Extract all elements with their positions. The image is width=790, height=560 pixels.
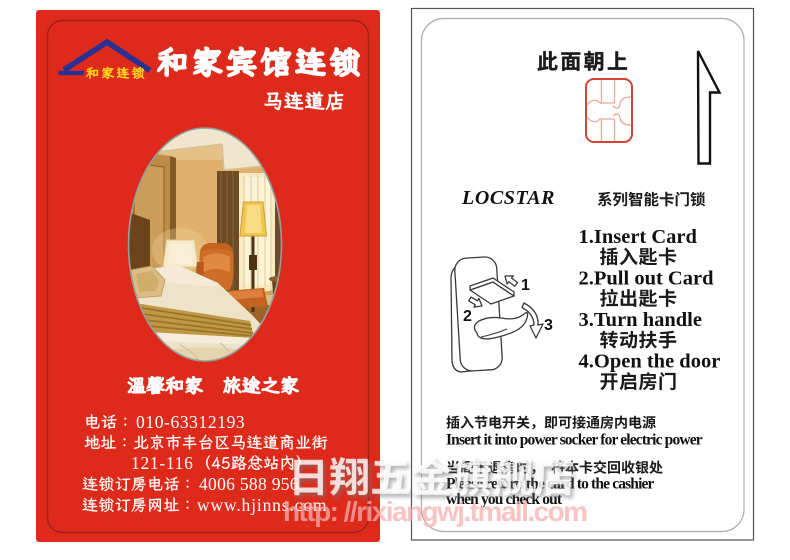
svg-text:2.Pull out Card: 2.Pull out Card (579, 267, 715, 289)
svg-text:http: //rixiangwj.tmall.com: http: //rixiangwj.tmall.com (283, 496, 587, 527)
svg-text:4006 588 956: 4006 588 956 (199, 474, 299, 494)
svg-text:1: 1 (521, 277, 530, 294)
svg-text:3: 3 (544, 317, 553, 334)
svg-text:010-63312193: 010-63312193 (136, 412, 245, 432)
svg-text:3.Turn handle: 3.Turn handle (579, 309, 702, 331)
svg-text:Insert it into power socker fo: Insert it into power socker for electric… (446, 432, 703, 449)
svg-text:121-116: 121-116 (131, 453, 194, 473)
svg-text:1.Insert Card: 1.Insert Card (579, 226, 698, 248)
svg-text:4.Open the door: 4.Open the door (579, 351, 721, 373)
svg-text:2: 2 (463, 308, 472, 325)
svg-text:LOCSTAR: LOCSTAR (461, 187, 555, 209)
